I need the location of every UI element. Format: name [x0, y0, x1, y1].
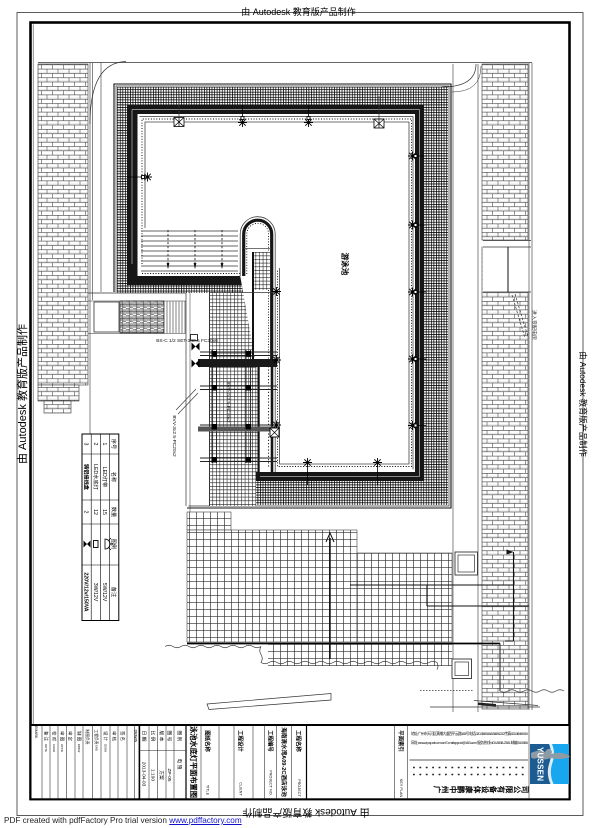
svg-text:备注: 备注	[110, 587, 118, 597]
svg-text:220V/12v/150VA: 220V/12v/150VA	[83, 572, 89, 611]
svg-text:15: 15	[101, 509, 107, 515]
svg-text:备 注: 备 注	[43, 731, 50, 741]
svg-text:ENG: ENG	[95, 745, 99, 751]
svg-text:网址:www.zp-sport.com.cn E-mail:: 网址:www.zp-sport.com.cn E-mail:zppool@163…	[411, 740, 528, 745]
svg-text:铸铝接线盒: 铸铝接线盒	[83, 464, 91, 491]
svg-text:12: 12	[92, 509, 98, 515]
svg-text:APPD: APPD	[60, 744, 64, 752]
svg-text:REMARK: REMARK	[34, 724, 38, 739]
svg-text:CHKD: CHKD	[52, 744, 56, 752]
svg-text:图 号: 图 号	[166, 731, 172, 742]
svg-text:图 别: 图 别	[176, 731, 183, 742]
svg-text:设 计: 设 计	[102, 731, 109, 741]
svg-text:名称: 名称	[110, 472, 118, 482]
svg-text:3W/12V: 3W/12V	[92, 583, 98, 602]
svg-text:序号: 序号	[110, 439, 118, 449]
svg-text:TITLE: TITLE	[206, 785, 210, 796]
svg-text:州: 州	[441, 785, 450, 794]
svg-text:LED灯带: LED灯带	[101, 467, 109, 487]
svg-text:司: 司	[521, 786, 530, 794]
svg-text:LED水底灯: LED水底灯	[92, 464, 100, 490]
svg-text:审 图: 审 图	[59, 731, 66, 741]
svg-text:BVV-3x2.5-PC20x2: BVV-3x2.5-PC20x2	[171, 415, 177, 457]
svg-text:海南清水湾A09-2C酒店泳池: 海南清水湾A09-2C酒店泳池	[280, 727, 288, 797]
svg-text:工程名称: 工程名称	[295, 730, 303, 752]
svg-text:BVV-2x2.5-PC20x2: BVV-2x2.5-PC20x2	[225, 381, 231, 423]
svg-text:5W/12V: 5W/12V	[101, 583, 107, 602]
svg-text:游泳池: 游泳池	[341, 253, 351, 276]
svg-text:工程负责: 工程负责	[94, 729, 99, 744]
svg-text:进入变配电房: 进入变配电房	[531, 310, 538, 340]
svg-text:图纸名称: 图纸名称	[203, 730, 211, 752]
svg-text:平面索引: 平面索引	[397, 730, 405, 752]
svg-text:公: 公	[513, 786, 522, 794]
svg-text:审 核: 审 核	[111, 731, 118, 741]
svg-text:制 图: 制 图	[76, 731, 83, 741]
svg-text:1:100: 1:100	[149, 769, 155, 781]
svg-text:日 期: 日 期	[140, 731, 146, 742]
svg-text:校 对: 校 对	[51, 731, 58, 741]
svg-text:3: 3	[83, 443, 89, 446]
svg-text:KEY PLAN: KEY PLAN	[399, 779, 403, 798]
svg-text:制图负责: 制图负责	[85, 729, 90, 744]
svg-text:审 定: 审 定	[66, 731, 73, 741]
svg-text:NOTE: NOTE	[44, 744, 48, 752]
svg-text:2: 2	[92, 443, 98, 446]
svg-text:PROJECT NO.: PROJECT NO.	[269, 770, 273, 795]
svg-text:DRAW: DRAW	[77, 744, 81, 753]
svg-text:数量: 数量	[110, 507, 118, 517]
svg-text:版 本: 版 本	[158, 731, 165, 742]
svg-text:限: 限	[505, 786, 514, 794]
svg-text:地址:广州市天河区黄埔大道西平云路163号 电话:020-3: 地址:广州市天河区黄埔大道西平云路163号 电话:020-38491616 38…	[411, 731, 528, 736]
svg-text:DRAWN: DRAWN	[134, 730, 138, 743]
svg-text:泳池水底灯平面布置图: 泳池水底灯平面布置图	[189, 726, 198, 798]
svg-text:方案: 方案	[158, 770, 165, 780]
svg-text:2: 2	[83, 511, 89, 514]
svg-text:PROJECT: PROJECT	[297, 779, 301, 797]
svg-text:ZP-05: ZP-05	[166, 768, 172, 781]
svg-text:比 例: 比 例	[149, 731, 156, 742]
svg-text:签 名: 签 名	[119, 731, 126, 741]
svg-text:2013-04-03: 2013-04-03	[140, 762, 146, 787]
svg-text:工程设计: 工程设计	[236, 730, 244, 752]
svg-text:YUSSEN: YUSSEN	[536, 747, 545, 781]
svg-text:工程编号: 工程编号	[267, 730, 275, 752]
svg-text:CLIENT: CLIENT	[239, 782, 243, 796]
svg-text:电 施: 电 施	[176, 759, 183, 770]
svg-text:1: 1	[101, 443, 107, 446]
svg-text:DSGN: DSGN	[104, 744, 108, 752]
svg-text:BS-C 1/2 SET-340.5 FC30x6: BS-C 1/2 SET-340.5 FC30x6	[156, 338, 218, 344]
